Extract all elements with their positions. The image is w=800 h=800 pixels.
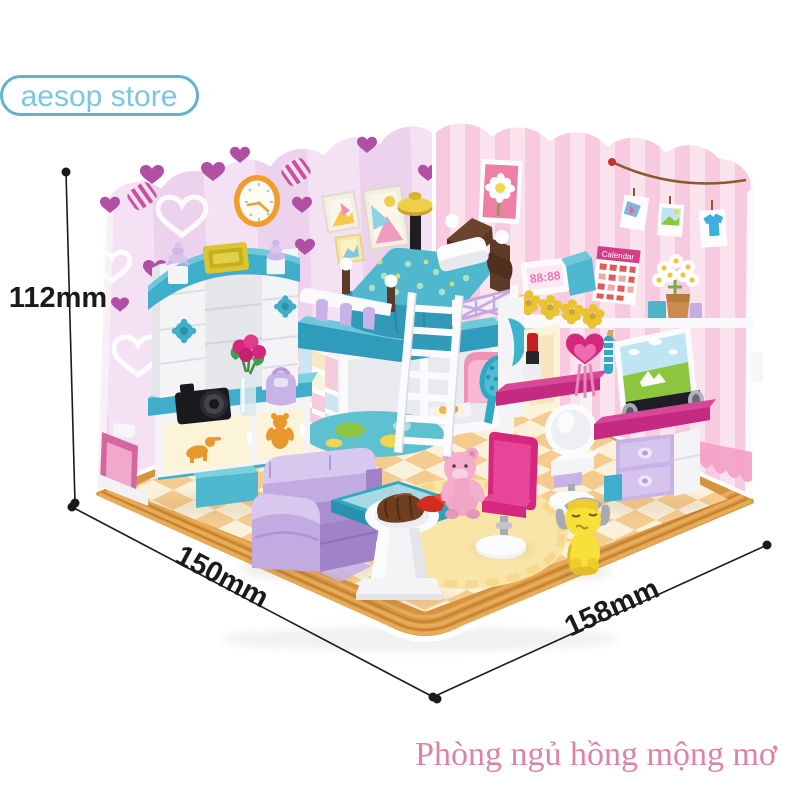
svg-text:aesop store: aesop store: [21, 80, 178, 113]
svg-text:Phòng ngủ hồng mộng mơ: Phòng ngủ hồng mộng mơ: [415, 736, 778, 773]
svg-text:112mm: 112mm: [9, 282, 107, 314]
